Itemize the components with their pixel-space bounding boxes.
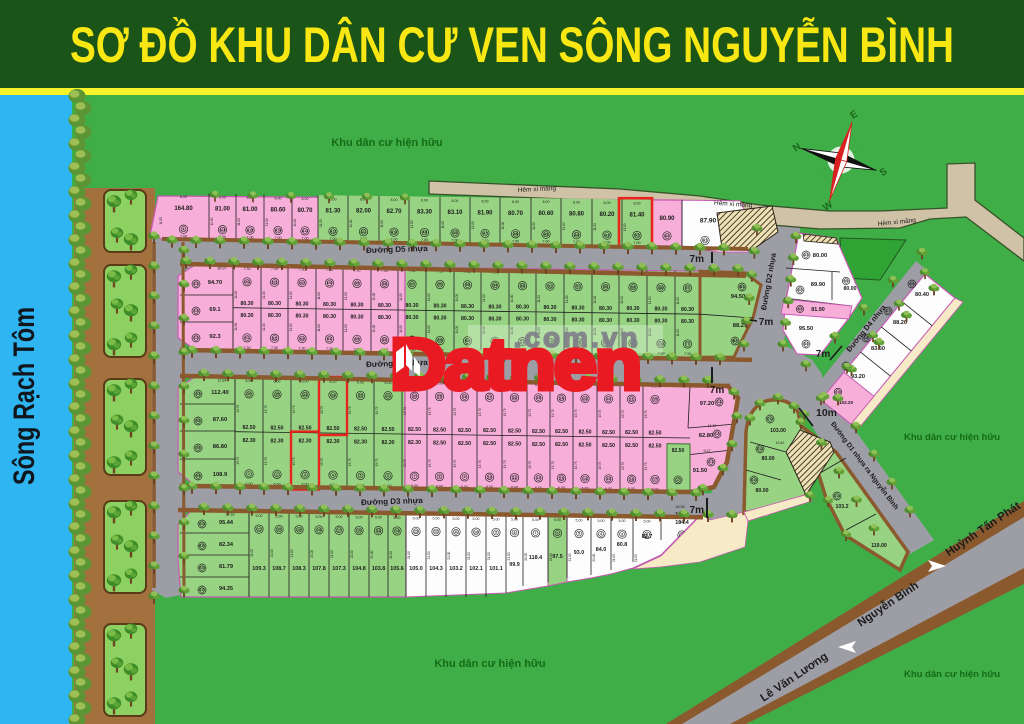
svg-text:11.00: 11.00 <box>482 294 486 302</box>
svg-text:80.30: 80.30 <box>296 302 309 308</box>
svg-text:5: 5 <box>360 474 362 478</box>
svg-text:11.00: 11.00 <box>262 323 266 331</box>
svg-text:82.50: 82.50 <box>382 427 395 433</box>
svg-text:94: 94 <box>493 284 497 288</box>
svg-text:13.75: 13.75 <box>375 406 379 414</box>
svg-text:11.00: 11.00 <box>441 221 445 229</box>
svg-text:102: 102 <box>272 280 278 284</box>
svg-text:21.00: 21.00 <box>427 551 431 559</box>
svg-text:82.30: 82.30 <box>354 439 367 445</box>
svg-text:12: 12 <box>434 530 438 534</box>
svg-text:69.1: 69.1 <box>209 307 221 313</box>
svg-text:92.3: 92.3 <box>209 334 221 340</box>
svg-text:13.75: 13.75 <box>644 462 648 470</box>
svg-text:21.00: 21.00 <box>310 550 314 558</box>
svg-text:13.75: 13.75 <box>375 458 379 466</box>
svg-text:11: 11 <box>513 476 517 480</box>
svg-text:17: 17 <box>676 478 680 482</box>
svg-text:13.75: 13.75 <box>528 409 532 417</box>
svg-text:5.00: 5.00 <box>598 519 605 523</box>
svg-text:11.00: 11.00 <box>510 294 514 302</box>
svg-text:7: 7 <box>535 531 537 535</box>
svg-text:15: 15 <box>377 529 381 533</box>
svg-text:80.30: 80.30 <box>655 319 668 325</box>
svg-text:11.00: 11.00 <box>234 323 238 331</box>
svg-text:82.50: 82.50 <box>649 431 662 437</box>
svg-text:13.75: 13.75 <box>292 405 296 413</box>
svg-text:80.20: 80.20 <box>599 212 615 218</box>
svg-text:81.90: 81.90 <box>811 307 825 313</box>
svg-text:13.75: 13.75 <box>292 457 296 465</box>
svg-text:82.50: 82.50 <box>354 426 367 432</box>
svg-text:C3: C3 <box>194 282 198 286</box>
svg-text:82.50: 82.50 <box>327 426 340 432</box>
svg-text:82.50: 82.50 <box>672 448 685 454</box>
svg-text:82.50: 82.50 <box>508 442 521 448</box>
svg-text:11.00: 11.00 <box>623 223 627 231</box>
svg-text:11.00: 11.00 <box>289 323 293 331</box>
svg-text:A13: A13 <box>302 229 308 233</box>
svg-text:80.00: 80.00 <box>756 488 769 494</box>
svg-text:8: 8 <box>514 531 516 535</box>
svg-text:82.7: 82.7 <box>642 534 653 540</box>
svg-text:82.30: 82.30 <box>408 440 421 446</box>
svg-text:89.90: 89.90 <box>811 282 826 288</box>
svg-text:11.00: 11.00 <box>380 220 384 228</box>
svg-text:5.00: 5.00 <box>532 518 539 522</box>
svg-text:80.30: 80.30 <box>681 307 694 313</box>
svg-text:82.50: 82.50 <box>458 441 471 447</box>
svg-text:B1: B1 <box>740 285 745 289</box>
svg-text:90: 90 <box>604 285 608 289</box>
svg-text:A12: A12 <box>330 230 336 234</box>
svg-text:A8: A8 <box>453 231 457 235</box>
svg-text:5.00: 5.00 <box>413 516 420 520</box>
svg-text:82.50: 82.50 <box>555 442 568 448</box>
svg-text:107.3: 107.3 <box>332 566 346 572</box>
svg-text:80.30: 80.30 <box>351 302 364 308</box>
svg-text:11.00: 11.00 <box>427 293 431 301</box>
svg-text:13.75: 13.75 <box>264 405 268 413</box>
svg-text:100: 100 <box>327 281 333 285</box>
svg-text:104.8: 104.8 <box>352 566 366 572</box>
svg-text:96: 96 <box>438 283 442 287</box>
svg-text:82.30: 82.30 <box>299 439 312 445</box>
svg-text:13.75: 13.75 <box>644 410 648 418</box>
svg-text:8.00: 8.00 <box>604 201 611 205</box>
svg-text:82.50: 82.50 <box>555 429 568 435</box>
svg-text:11.00: 11.00 <box>265 218 269 226</box>
svg-text:8.00: 8.00 <box>391 198 398 202</box>
svg-text:82.30: 82.30 <box>271 438 284 444</box>
svg-text:21.00: 21.00 <box>250 549 254 557</box>
svg-text:11: 11 <box>454 530 458 534</box>
svg-text:C3: C3 <box>717 400 721 404</box>
svg-text:105.0: 105.0 <box>409 566 423 572</box>
svg-text:7m: 7m <box>759 317 774 328</box>
svg-text:82.50: 82.50 <box>458 428 471 434</box>
svg-text:62: 62 <box>273 336 277 340</box>
svg-text:A1: A1 <box>703 239 707 243</box>
svg-text:80.30: 80.30 <box>268 313 281 319</box>
svg-text:82.50: 82.50 <box>433 441 446 447</box>
svg-text:A2: A2 <box>665 234 669 238</box>
svg-text:5.00: 5.00 <box>644 520 651 524</box>
svg-text:7m: 7m <box>710 385 725 396</box>
svg-text:8.00: 8.00 <box>512 200 519 204</box>
svg-text:8.00: 8.00 <box>482 199 489 203</box>
svg-text:11.00: 11.00 <box>501 222 505 230</box>
svg-text:5.00: 5.00 <box>336 515 343 519</box>
svg-text:10: 10 <box>488 475 492 479</box>
svg-text:14: 14 <box>395 529 399 533</box>
svg-text:D1: D1 <box>804 253 808 257</box>
svg-text:7.00: 7.00 <box>512 239 519 243</box>
svg-text:101: 101 <box>299 281 305 285</box>
svg-text:87.90: 87.90 <box>700 218 717 225</box>
svg-text:80.30: 80.30 <box>296 314 309 320</box>
svg-text:13.75: 13.75 <box>621 410 625 418</box>
svg-text:82.50: 82.50 <box>579 443 592 449</box>
svg-text:13.75: 13.75 <box>403 407 407 415</box>
svg-text:14.63: 14.63 <box>226 513 235 517</box>
svg-text:21.00: 21.00 <box>549 553 553 561</box>
svg-text:63: 63 <box>300 337 304 341</box>
svg-text:103: 103 <box>244 280 250 284</box>
svg-text:99: 99 <box>355 282 359 286</box>
svg-text:7m: 7m <box>690 254 705 265</box>
svg-text:13.75: 13.75 <box>320 458 324 466</box>
svg-text:108.3: 108.3 <box>292 566 306 572</box>
svg-text:108.9: 108.9 <box>213 472 228 478</box>
svg-text:5.00: 5.00 <box>356 516 363 520</box>
svg-text:80.30: 80.30 <box>489 304 502 310</box>
svg-text:80.40: 80.40 <box>915 292 929 298</box>
svg-text:Datnen: Datnen <box>390 325 640 405</box>
svg-text:103.2: 103.2 <box>836 504 849 510</box>
svg-text:21.00: 21.00 <box>330 550 334 558</box>
svg-text:82.30: 82.30 <box>243 438 256 444</box>
svg-text:11.00: 11.00 <box>537 295 541 303</box>
svg-text:13: 13 <box>560 476 564 480</box>
svg-text:66: 66 <box>383 338 387 342</box>
svg-text:11.00: 11.00 <box>349 219 353 227</box>
svg-text:7m: 7m <box>816 349 831 360</box>
svg-text:97: 97 <box>410 282 414 286</box>
svg-text:97.5: 97.5 <box>552 554 563 560</box>
svg-text:E25: E25 <box>199 544 205 548</box>
svg-text:13.75: 13.75 <box>598 409 602 417</box>
svg-text:9: 9 <box>464 475 466 479</box>
svg-text:5.00: 5.00 <box>511 518 518 522</box>
svg-text:82.70: 82.70 <box>386 209 402 215</box>
svg-text:13.75: 13.75 <box>348 458 352 466</box>
svg-text:80.80: 80.80 <box>569 212 585 218</box>
svg-text:80.60: 80.60 <box>538 211 554 217</box>
svg-text:112.40: 112.40 <box>211 390 228 396</box>
svg-text:20: 20 <box>277 528 281 532</box>
svg-text:21.00: 21.00 <box>524 553 528 561</box>
svg-text:10: 10 <box>474 530 478 534</box>
svg-text:C3: C3 <box>194 309 198 313</box>
svg-text:8.00: 8.00 <box>421 199 428 203</box>
svg-text:80.30: 80.30 <box>489 316 502 322</box>
svg-text:A6: A6 <box>513 232 517 236</box>
svg-text:16: 16 <box>357 529 361 533</box>
svg-text:11.00: 11.00 <box>532 222 536 230</box>
svg-text:94.35: 94.35 <box>219 586 233 592</box>
svg-text:85.97: 85.97 <box>218 267 227 271</box>
svg-text:109.3: 109.3 <box>252 566 266 572</box>
svg-text:80.30: 80.30 <box>572 306 585 312</box>
svg-text:12.84: 12.84 <box>218 379 227 383</box>
svg-text:80.30: 80.30 <box>378 315 391 321</box>
svg-text:13.75: 13.75 <box>528 461 532 469</box>
svg-text:80.30: 80.30 <box>406 303 419 309</box>
svg-text:5.00: 5.00 <box>619 519 626 523</box>
svg-text:83.30: 83.30 <box>417 210 433 216</box>
svg-text:64: 64 <box>328 337 332 341</box>
svg-text:80.60: 80.60 <box>270 208 286 214</box>
svg-text:81.40: 81.40 <box>629 213 645 219</box>
svg-text:82.50: 82.50 <box>625 443 638 449</box>
svg-text:82.50: 82.50 <box>625 430 638 436</box>
svg-text:80.00: 80.00 <box>844 286 857 292</box>
svg-text:D11: D11 <box>767 417 773 421</box>
svg-text:5.00: 5.00 <box>394 516 401 520</box>
svg-text:G5: G5 <box>196 392 201 396</box>
svg-text:13.75: 13.75 <box>236 404 240 412</box>
svg-text:93: 93 <box>521 284 525 288</box>
svg-text:34: 34 <box>303 393 307 397</box>
svg-text:102.1: 102.1 <box>469 566 483 572</box>
svg-text:7.00: 7.00 <box>543 240 550 244</box>
svg-text:13.75: 13.75 <box>320 406 324 414</box>
svg-text:91: 91 <box>576 285 580 289</box>
svg-text:11.00: 11.00 <box>317 292 321 300</box>
svg-text:88: 88 <box>659 286 663 290</box>
svg-text:13.75: 13.75 <box>264 457 268 465</box>
svg-text:6: 6 <box>557 531 559 535</box>
svg-text:80.30: 80.30 <box>241 313 254 319</box>
svg-text:D14: D14 <box>834 494 840 498</box>
svg-text:97.20: 97.20 <box>700 401 715 407</box>
svg-text:D13: D13 <box>751 478 757 482</box>
svg-text:D12: D12 <box>757 447 763 451</box>
svg-text:95: 95 <box>466 283 470 287</box>
svg-text:21.00: 21.00 <box>270 549 274 557</box>
svg-text:94.70: 94.70 <box>208 280 223 286</box>
svg-text:11.00: 11.00 <box>562 222 566 230</box>
svg-text:11.00: 11.00 <box>399 293 403 301</box>
svg-text:36: 36 <box>247 392 251 396</box>
svg-text:82.50: 82.50 <box>649 444 662 450</box>
svg-text:33: 33 <box>331 393 335 397</box>
svg-text:11.00: 11.00 <box>648 296 652 304</box>
svg-text:80.30: 80.30 <box>627 306 640 312</box>
svg-text:8.00: 8.00 <box>219 196 226 200</box>
svg-text:89: 89 <box>631 285 635 289</box>
svg-text:8: 8 <box>439 475 441 479</box>
svg-text:119.00: 119.00 <box>871 543 887 549</box>
svg-text:A16: A16 <box>219 228 225 232</box>
svg-text:11.00: 11.00 <box>159 217 163 225</box>
svg-text:82.50: 82.50 <box>532 442 545 448</box>
svg-text:81.00: 81.00 <box>215 207 231 213</box>
svg-text:13.75: 13.75 <box>478 408 482 416</box>
svg-text:82.50: 82.50 <box>532 429 545 435</box>
svg-text:A14: A14 <box>275 229 281 233</box>
svg-text:82.50: 82.50 <box>243 425 256 431</box>
svg-text:81.00: 81.00 <box>242 207 258 213</box>
svg-text:105.6: 105.6 <box>390 566 404 572</box>
svg-text:11.00: 11.00 <box>372 325 376 333</box>
svg-text:21.00: 21.00 <box>487 552 491 560</box>
svg-text:8.00: 8.00 <box>543 200 550 204</box>
svg-text:13.75: 13.75 <box>453 407 457 415</box>
svg-text:D10: D10 <box>835 390 841 394</box>
svg-text:82.50: 82.50 <box>433 428 446 434</box>
svg-text:10.40: 10.40 <box>776 441 785 445</box>
svg-text:A2: A2 <box>635 234 639 238</box>
svg-text:11.00: 11.00 <box>289 291 293 299</box>
svg-text:21.00: 21.00 <box>407 551 411 559</box>
svg-text:80.90: 80.90 <box>659 216 675 222</box>
svg-text:103.2: 103.2 <box>449 566 463 572</box>
svg-text:1: 1 <box>248 472 250 476</box>
svg-text:83.10: 83.10 <box>447 210 463 216</box>
svg-text:9.27: 9.27 <box>704 449 711 453</box>
svg-text:5.00: 5.00 <box>576 519 583 523</box>
svg-text:11.00: 11.00 <box>620 296 624 304</box>
svg-text:8.00: 8.00 <box>634 202 641 206</box>
svg-text:G5: G5 <box>196 474 201 478</box>
svg-text:11.00: 11.00 <box>455 294 459 302</box>
svg-text:17: 17 <box>337 528 341 532</box>
svg-text:80.30: 80.30 <box>268 301 281 307</box>
svg-text:8.00: 8.00 <box>180 195 187 199</box>
svg-text:20: 20 <box>653 398 657 402</box>
svg-text:13.75: 13.75 <box>574 409 578 417</box>
svg-text:81.90: 81.90 <box>477 210 493 216</box>
svg-text:98: 98 <box>383 282 387 286</box>
svg-text:65: 65 <box>355 338 359 342</box>
svg-text:18.55: 18.55 <box>676 505 685 509</box>
svg-text:32: 32 <box>359 394 363 398</box>
svg-text:11.00: 11.00 <box>234 291 238 299</box>
svg-text:13.75: 13.75 <box>403 459 407 467</box>
svg-text:3: 3 <box>621 532 623 536</box>
svg-text:11.00: 11.00 <box>210 217 214 225</box>
svg-text:4: 4 <box>600 532 602 536</box>
svg-text:7.30: 7.30 <box>684 352 691 356</box>
svg-text:A15: A15 <box>247 228 253 232</box>
svg-text:5: 5 <box>578 532 580 536</box>
svg-text:103.00: 103.00 <box>770 428 786 434</box>
svg-text:35: 35 <box>275 393 279 397</box>
svg-text:7.00: 7.00 <box>634 241 641 245</box>
svg-text:16: 16 <box>630 477 634 481</box>
svg-text:13.75: 13.75 <box>503 460 507 468</box>
svg-text:7m: 7m <box>690 505 705 516</box>
svg-text:11.00: 11.00 <box>565 295 569 303</box>
svg-text:11.00: 11.00 <box>410 220 414 228</box>
svg-text:13.75: 13.75 <box>453 459 457 467</box>
svg-text:86.80: 86.80 <box>213 444 228 450</box>
svg-text:D6: D6 <box>910 282 914 286</box>
svg-text:A5: A5 <box>544 232 548 236</box>
svg-text:Khu dân cư hiện hữu: Khu dân cư hiện hữu <box>434 658 545 670</box>
svg-text:108.7: 108.7 <box>272 566 286 572</box>
svg-text:21.00: 21.00 <box>447 551 451 559</box>
svg-text:82.50: 82.50 <box>483 441 496 447</box>
svg-text:80.30: 80.30 <box>516 305 529 311</box>
svg-text:11.00: 11.00 <box>317 324 321 332</box>
svg-text:21.00: 21.00 <box>370 550 374 558</box>
svg-text:11.00: 11.00 <box>293 219 297 227</box>
svg-text:5.00: 5.00 <box>375 516 382 520</box>
svg-text:6: 6 <box>387 474 389 478</box>
svg-text:5.00: 5.00 <box>316 515 323 519</box>
svg-text:Khu dân cư hiện hữu: Khu dân cư hiện hữu <box>331 137 442 149</box>
svg-text:93.0: 93.0 <box>574 550 585 556</box>
svg-text:8.00: 8.00 <box>275 197 282 201</box>
svg-text:3: 3 <box>304 473 306 477</box>
svg-text:81.79: 81.79 <box>219 564 233 570</box>
svg-text:5.00: 5.00 <box>453 517 460 521</box>
svg-text:80.30: 80.30 <box>406 315 419 321</box>
svg-text:103.8: 103.8 <box>372 566 386 572</box>
svg-text:C3: C3 <box>194 336 198 340</box>
svg-text:D3: D3 <box>798 307 802 311</box>
svg-text:21.00: 21.00 <box>612 554 616 562</box>
svg-text:21.00: 21.00 <box>568 553 572 561</box>
svg-text:C1: C1 <box>709 460 713 464</box>
svg-text:5.00: 5.00 <box>256 514 263 518</box>
svg-text:Sông Rạch Tôm: Sông Rạch Tôm <box>8 307 41 485</box>
svg-text:9: 9 <box>495 531 497 535</box>
svg-text:80.30: 80.30 <box>241 301 254 307</box>
svg-text:D6: D6 <box>844 279 848 283</box>
svg-text:80.70: 80.70 <box>508 211 524 217</box>
svg-text:80.30: 80.30 <box>544 305 557 311</box>
svg-text:80.30: 80.30 <box>378 303 391 309</box>
svg-text:13.75: 13.75 <box>348 406 352 414</box>
svg-text:84.0: 84.0 <box>596 547 607 553</box>
svg-text:E25: E25 <box>199 566 205 570</box>
svg-text:80.30: 80.30 <box>461 304 474 310</box>
svg-text:80.70: 80.70 <box>297 208 313 214</box>
svg-text:5.00: 5.00 <box>296 515 303 519</box>
svg-text:107.8: 107.8 <box>312 566 326 572</box>
svg-text:A4: A4 <box>574 233 578 237</box>
svg-text:80.30: 80.30 <box>655 307 668 313</box>
svg-text:G5: G5 <box>196 446 201 450</box>
svg-text:82.50: 82.50 <box>508 429 521 435</box>
svg-text:80.30: 80.30 <box>461 316 474 322</box>
svg-text:11.00: 11.00 <box>676 297 680 305</box>
svg-text:94.50: 94.50 <box>731 294 746 300</box>
svg-text:101.1: 101.1 <box>489 566 503 572</box>
svg-text:88.20: 88.20 <box>893 320 907 326</box>
svg-text:80.30: 80.30 <box>323 314 336 320</box>
svg-text:11.00: 11.00 <box>344 292 348 300</box>
svg-text:D2: D2 <box>798 288 802 292</box>
svg-text:80.30: 80.30 <box>434 316 447 322</box>
svg-text:11.00: 11.00 <box>471 221 475 229</box>
svg-text:95.44: 95.44 <box>219 520 234 526</box>
svg-text:10m: 10m <box>816 407 837 419</box>
